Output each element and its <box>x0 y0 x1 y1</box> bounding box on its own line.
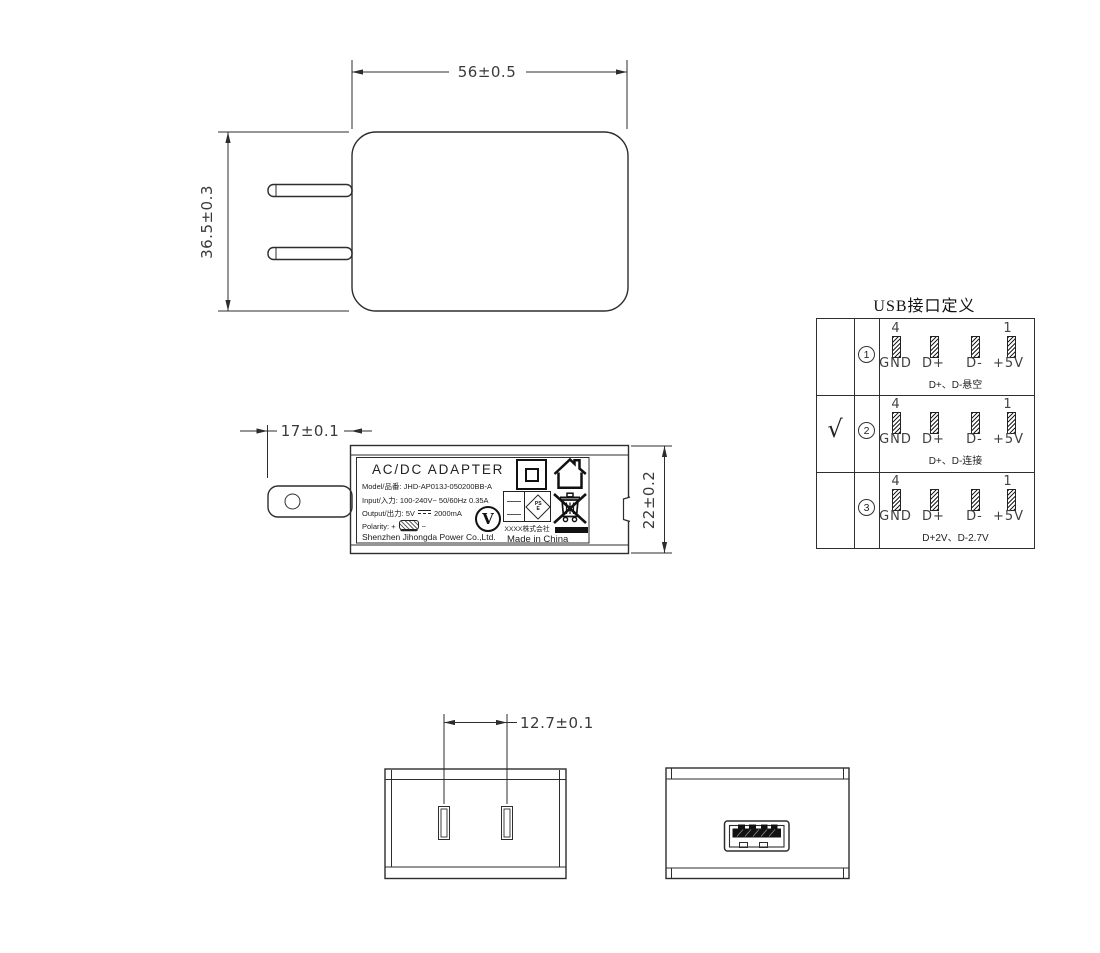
pin-glyph-dminus <box>971 412 980 434</box>
pin-label-5v: +5V <box>991 432 1026 447</box>
label-polarity: Polarity: +− <box>362 520 426 531</box>
pin-label-5v: +5V <box>991 509 1026 524</box>
pin-label-5v: +5V <box>991 356 1026 371</box>
dim-body-depth: 22±0.2 <box>631 446 672 553</box>
pse-letters: PSE <box>534 501 541 511</box>
pse-e: E <box>536 505 539 511</box>
pin-label-gnd: GND <box>879 432 912 447</box>
pse-mark: PSE <box>503 491 551 522</box>
dim-front-height: 36.5±0.3 <box>198 132 349 311</box>
prong-slot-right <box>502 807 513 840</box>
polarity-label: Polarity: <box>362 522 389 531</box>
pin-glyph-gnd <box>892 489 901 511</box>
label-output-prefix: Output/出力: 5V <box>362 509 415 518</box>
usb-connector-icon <box>399 520 419 530</box>
dim-pin-spacing: 12.7±0.1 <box>444 714 594 804</box>
pin-label-dminus: D- <box>962 356 987 371</box>
dim-front-width: 56±0.5 <box>352 60 627 129</box>
pin-label-dplus: D+ <box>921 432 946 447</box>
class2-insulation-icon <box>516 459 547 490</box>
pin-glyph-dminus <box>971 489 980 511</box>
output-view-usb <box>666 768 849 879</box>
pin-glyph-dminus <box>971 336 980 358</box>
plug-prong-side <box>268 486 352 517</box>
pin-glyph-5v <box>1007 489 1016 511</box>
pin-glyph-dplus <box>930 336 939 358</box>
table-row: 1 4 1 GND D+ D- +5V D+、D-悬空 <box>817 319 1034 395</box>
dim-text-prong-length: 17±0.1 <box>281 422 340 440</box>
dim-text-front-height: 36.5±0.3 <box>198 185 216 259</box>
indoor-use-icon <box>552 457 589 491</box>
pin-number-4: 4 <box>888 474 903 489</box>
prong-hole <box>285 494 300 509</box>
pse-diamond-wrap: PSE <box>525 492 550 521</box>
dim-prong-length: 17±0.1 <box>240 422 372 478</box>
pin-glyph-gnd <box>892 336 901 358</box>
rating-label: AC/DC ADAPTER Model/品番: JHD-AP013J-05020… <box>356 457 589 543</box>
technical-drawing-canvas: 56±0.5 36.5±0.3 <box>0 0 1100 953</box>
pin-glyph-5v <box>1007 336 1016 358</box>
dim-text-front-width: 56±0.5 <box>458 63 517 81</box>
weee-bar <box>555 527 588 533</box>
prong-slot-left <box>439 807 450 840</box>
pin-number-1: 1 <box>1000 397 1015 412</box>
efficiency-mark-v: V <box>475 506 501 532</box>
pin-label-gnd: GND <box>879 509 912 524</box>
label-model: Model/品番: JHD-AP013J-050200BB-A <box>362 481 492 492</box>
usb-table-title: USB接口定义 <box>816 292 1033 316</box>
pin-number-4: 4 <box>888 321 903 336</box>
row-caption: D+、D-连接 <box>883 452 1028 467</box>
polarity-minus: − <box>422 522 426 531</box>
row-check: √ <box>821 415 849 443</box>
pin-label-dplus: D+ <box>921 356 946 371</box>
body-outline-pin-face <box>385 769 566 879</box>
label-output-suffix: 2000mA <box>434 509 462 518</box>
circled-number: 3 <box>858 499 875 516</box>
label-maker: XXXX株式会社 <box>503 523 551 533</box>
table-row: 3 4 1 GND D+ D- +5V D+2V、D-2.7V <box>817 472 1034 548</box>
pin-label-gnd: GND <box>879 356 912 371</box>
efficiency-letter: V <box>482 510 494 528</box>
pin-number-1: 1 <box>1000 321 1015 336</box>
pin-glyph-gnd <box>892 412 901 434</box>
row-caption: D+、D-悬空 <box>883 376 1028 391</box>
label-company: Shenzhen Jihongda Power Co.,Ltd. <box>362 532 496 542</box>
label-output: Output/出力: 5V2000mA <box>362 508 462 519</box>
usb-port <box>725 821 790 851</box>
plug-prong-upper <box>268 185 352 197</box>
table-row: √ 2 4 1 GND D+ D- +5V D+、D-连接 <box>817 395 1034 472</box>
pin-label-dplus: D+ <box>921 509 946 524</box>
usb-end-notch <box>624 497 631 522</box>
plug-prong-lower <box>268 248 352 260</box>
pin-number-1: 1 <box>1000 474 1015 489</box>
dim-text-pin-spacing: 12.7±0.1 <box>520 714 594 732</box>
label-input: Input/入力: 100-240V~ 50/60Hz 0.35A <box>362 495 489 506</box>
pse-diamond-icon: PSE <box>525 494 550 519</box>
weee-bin-icon <box>552 490 588 526</box>
pin-glyph-dplus <box>930 489 939 511</box>
label-title: AC/DC ADAPTER <box>372 462 504 477</box>
pin-label-dminus: D- <box>962 509 987 524</box>
pin-glyph-5v <box>1007 412 1016 434</box>
label-made-in: Made in China <box>507 534 568 545</box>
dc-voltage-icon <box>418 509 431 517</box>
circled-number: 1 <box>858 346 875 363</box>
pin-number-4: 4 <box>888 397 903 412</box>
adapter-body-front <box>352 132 628 311</box>
usb-pin-table: 1 4 1 GND D+ D- +5V D+、D-悬空 √ 2 4 1 GND … <box>816 318 1035 549</box>
polarity-plus: + <box>391 522 395 531</box>
pin-glyph-dplus <box>930 412 939 434</box>
row-caption: D+2V、D-2.7V <box>883 529 1028 544</box>
dim-text-body-depth: 22±0.2 <box>640 471 658 530</box>
pin-label-dminus: D- <box>962 432 987 447</box>
approval-body-mark <box>504 492 525 521</box>
bottom-view-pins: 12.7±0.1 <box>385 714 594 879</box>
body-outline-usb-face <box>666 768 849 879</box>
circled-number: 2 <box>858 422 875 439</box>
front-view: 56±0.5 36.5±0.3 <box>198 60 628 311</box>
